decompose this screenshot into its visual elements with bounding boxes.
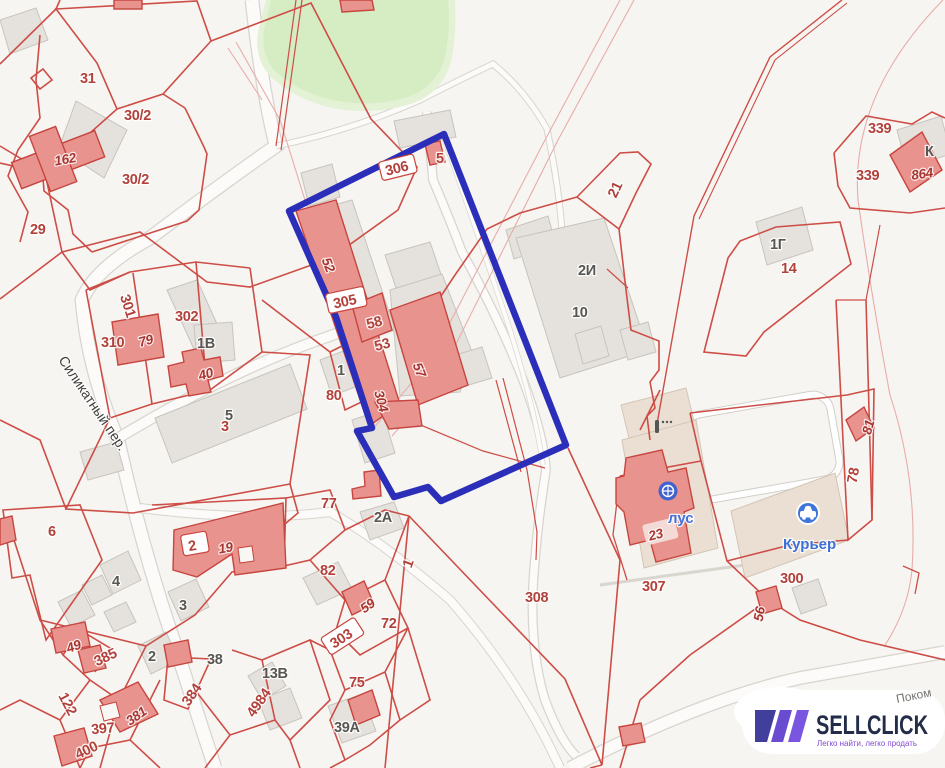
svg-text:78: 78 xyxy=(845,466,863,484)
svg-text:SELLCLICK: SELLCLICK xyxy=(816,710,928,740)
svg-text:38: 38 xyxy=(207,652,223,668)
svg-text:3: 3 xyxy=(179,598,187,614)
svg-text:39А: 39А xyxy=(334,720,361,736)
svg-text:80: 80 xyxy=(326,388,342,404)
svg-text:2И: 2И xyxy=(578,263,596,279)
svg-text:6: 6 xyxy=(48,524,56,540)
svg-text:308: 308 xyxy=(525,590,549,606)
svg-text:339: 339 xyxy=(868,121,892,137)
svg-text:3: 3 xyxy=(221,419,229,435)
svg-text:14: 14 xyxy=(781,261,797,277)
svg-text:75: 75 xyxy=(349,675,365,691)
svg-text:Легко найти, легко продать: Легко найти, легко продать xyxy=(817,738,918,748)
svg-text:310: 310 xyxy=(101,335,125,351)
svg-text:10: 10 xyxy=(572,305,588,321)
svg-text:5: 5 xyxy=(436,151,444,167)
svg-text:4: 4 xyxy=(112,574,120,590)
svg-text:1В: 1В xyxy=(197,336,215,352)
svg-text:302: 302 xyxy=(175,309,199,325)
svg-text:31: 31 xyxy=(80,71,96,87)
svg-text:300: 300 xyxy=(780,571,804,587)
svg-text:лус: лус xyxy=(668,510,694,527)
svg-text:77: 77 xyxy=(321,496,337,512)
svg-text:307: 307 xyxy=(642,579,666,595)
svg-text:29: 29 xyxy=(30,222,46,238)
svg-text:Курьер: Курьер xyxy=(783,536,836,553)
svg-text:339: 339 xyxy=(856,168,880,184)
svg-text:2А: 2А xyxy=(374,510,393,526)
svg-text:13В: 13В xyxy=(262,666,288,682)
svg-text:864: 864 xyxy=(910,165,934,183)
svg-text:1: 1 xyxy=(337,363,345,379)
svg-text:К: К xyxy=(925,144,934,160)
svg-text:30/2: 30/2 xyxy=(124,108,151,124)
svg-text:72: 72 xyxy=(381,616,397,632)
svg-text:82: 82 xyxy=(320,563,336,579)
svg-text:30/2: 30/2 xyxy=(122,172,149,188)
svg-text:2: 2 xyxy=(148,649,156,665)
svg-text:1Г: 1Г xyxy=(770,237,786,253)
svg-text:397: 397 xyxy=(91,720,116,738)
